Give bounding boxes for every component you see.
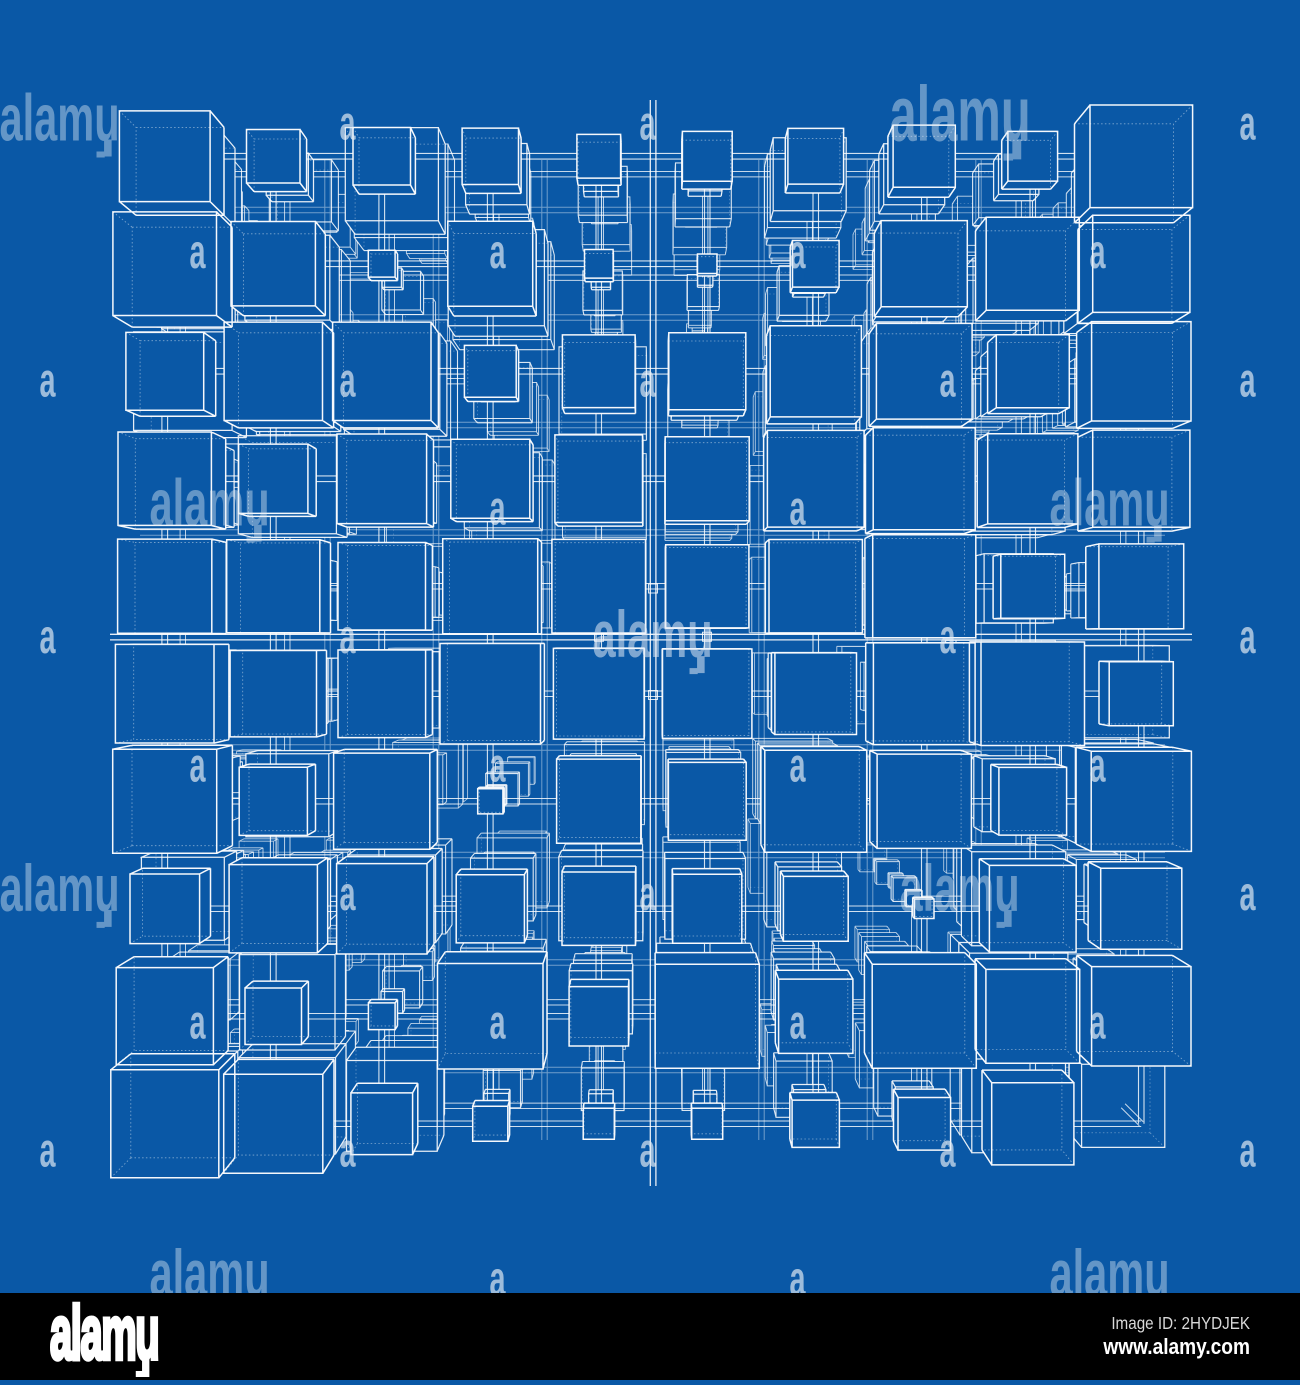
svg-text:a: a — [190, 739, 207, 792]
svg-text:alamu: alamu — [0, 851, 120, 925]
svg-text:a: a — [1240, 97, 1257, 150]
svg-text:a: a — [1090, 739, 1107, 792]
svg-text:a: a — [1240, 1124, 1257, 1177]
svg-text:a: a — [490, 996, 507, 1049]
svg-text:a: a — [790, 996, 807, 1049]
svg-text:a: a — [940, 354, 957, 407]
svg-text:a: a — [640, 867, 657, 920]
svg-text:a: a — [790, 739, 807, 792]
svg-text:a: a — [1240, 354, 1257, 407]
svg-text:a: a — [340, 1124, 357, 1177]
svg-text:a: a — [340, 611, 357, 664]
svg-text:a: a — [490, 739, 507, 792]
svg-text:alamu: alamu — [890, 70, 1031, 157]
svg-text:a: a — [40, 354, 57, 407]
svg-text:a: a — [490, 225, 507, 278]
svg-text:alamu: alamu — [593, 597, 713, 671]
svg-text:a: a — [640, 354, 657, 407]
svg-text:www.alamy.com: www.alamy.com — [1102, 1335, 1250, 1360]
svg-text:a: a — [340, 867, 357, 920]
svg-text:a: a — [190, 996, 207, 1049]
svg-text:alamu: alamu — [900, 851, 1020, 925]
svg-text:Image ID: 2HYDJEK: Image ID: 2HYDJEK — [1111, 1314, 1250, 1333]
svg-text:alamu: alamu — [0, 81, 120, 155]
svg-text:a: a — [940, 611, 957, 664]
svg-text:a: a — [790, 225, 807, 278]
svg-text:a: a — [640, 97, 657, 150]
svg-text:a: a — [640, 1124, 657, 1177]
svg-text:a: a — [490, 482, 507, 535]
svg-text:a: a — [790, 482, 807, 535]
svg-text:alamu: alamu — [1050, 466, 1170, 540]
svg-text:a: a — [190, 225, 207, 278]
svg-text:a: a — [1240, 867, 1257, 920]
svg-text:a: a — [40, 1124, 57, 1177]
svg-text:a: a — [340, 97, 357, 150]
svg-text:a: a — [1240, 611, 1257, 664]
svg-text:alamu: alamu — [150, 466, 270, 540]
svg-text:a: a — [940, 1124, 957, 1177]
svg-text:a: a — [1090, 225, 1107, 278]
svg-text:a: a — [40, 611, 57, 664]
svg-text:a: a — [1090, 996, 1107, 1049]
svg-text:a: a — [340, 354, 357, 407]
